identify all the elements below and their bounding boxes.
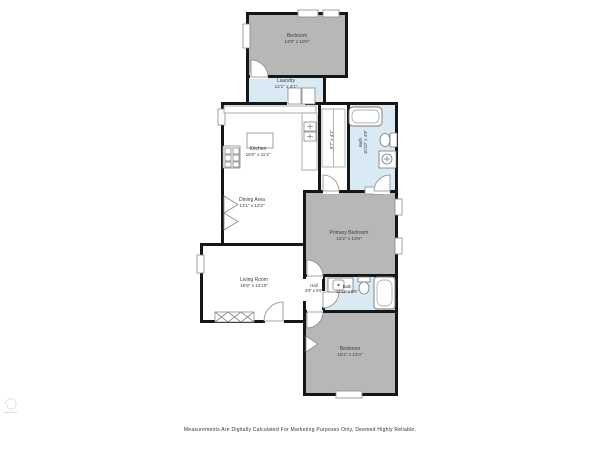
room-dimensions: 15'0" x 11'2" (228, 152, 288, 158)
watermark-logo (4, 399, 17, 413)
room-dimensions: 10'10" x 4'9" (363, 130, 368, 154)
room-dimensions: 13'1" x 12'2" (222, 203, 282, 209)
room-dimensions: 15'2" x 13'9" (299, 236, 399, 242)
room-dimensions: 16'9" x 12'10" (204, 283, 304, 289)
disclaimer-text: Measurements Are Digitally Calculated Fo… (0, 427, 600, 433)
room-label-bedroom-top: Bedroom 13'8" x 10'0" (247, 33, 347, 45)
room-label-bedroom-bottom: Bedroom 15'2" x 13'4" (300, 346, 400, 358)
room-label-hall: Hall 3'9" x 5'6" (301, 283, 327, 293)
room-bedroom-top (246, 12, 348, 78)
room-dimensions: 13'8" x 10'0" (247, 39, 347, 45)
floor-plan: Bedroom 13'8" x 10'0" Laundry 12'1" x 4'… (0, 0, 600, 450)
room-label-primary-bedroom: Primary Bedroom 15'2" x 13'9" (299, 230, 399, 242)
room-label-living: Living Room 16'9" x 12'10" (204, 277, 304, 289)
room-dimensions: 9'7" x 4'1" (329, 130, 334, 149)
room-label-laundry: Laundry 12'1" x 4'1" (246, 78, 326, 90)
room-dimensions: 11'11" x 5'6" (327, 289, 367, 294)
room-bath-upper (347, 102, 398, 193)
room-dimensions: 12'1" x 4'1" (246, 84, 326, 90)
room-label-bath-upper: Bath 10'10" x 4'9" (356, 115, 370, 170)
room-label-dining: Dining Area 13'1" x 12'2" (222, 197, 282, 209)
room-label-bath-lower: Bath 11'11" x 5'6" (327, 284, 367, 294)
room-dimensions: 3'9" x 5'6" (301, 288, 327, 293)
room-label-kitchen: Kitchen 15'0" x 11'2" (228, 146, 288, 158)
room-dimensions: 15'2" x 13'4" (300, 352, 400, 358)
room-label-closet: 9'7" x 4'1" (326, 115, 336, 165)
